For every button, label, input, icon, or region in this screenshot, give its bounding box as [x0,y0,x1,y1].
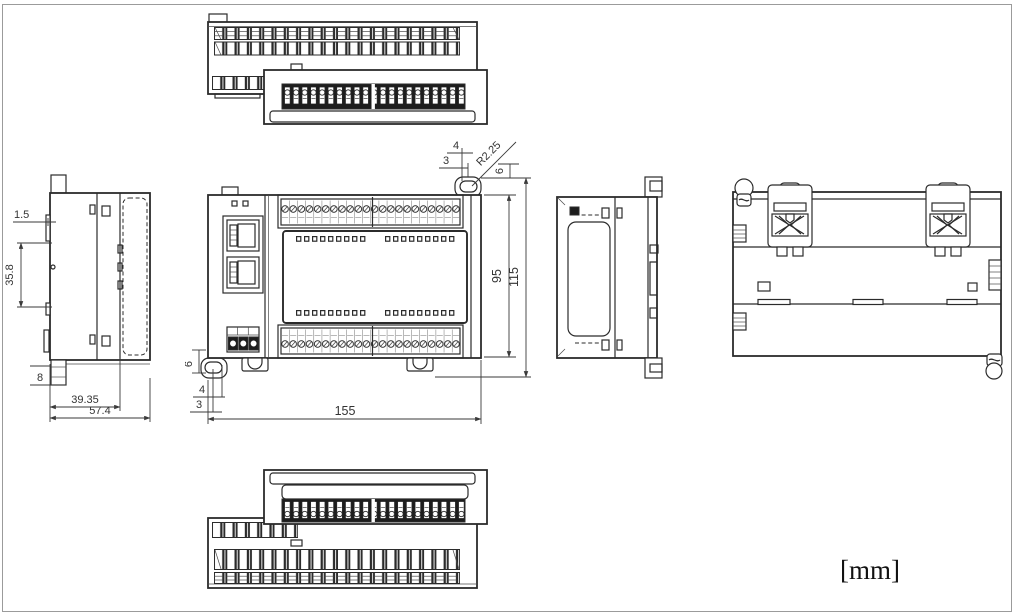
bottom-view-drawing [195,465,505,595]
dim-total-depth: 57.4 [89,405,110,417]
dim-total-height: 115 [507,267,521,287]
dim-total-width: 155 [335,404,356,418]
din-clip-1 [242,358,268,371]
dim-hole-offset-a: 4 [453,140,459,152]
dim-hole-offset-v: 6 [494,168,506,174]
mounting-hole-bottom-right [986,354,1002,379]
din-latch-2 [926,183,970,256]
terminal-divider [372,499,375,522]
top-edge-tab [222,187,238,195]
right-side-view-drawing [550,168,670,388]
bottom-edge-tab [215,94,260,98]
dim-foot-offset-b: 3 [196,399,202,411]
terminal-divider [372,84,375,109]
dim-front-offset: 1.5 [14,209,29,221]
page-root: 1.5 35.8 8 39.35 57.4 [0,0,1014,615]
dim-hole-offset-b: 3 [443,155,449,167]
top-terminal-strip [278,195,463,228]
din-clip-2 [407,358,433,371]
rear-view-drawing [725,168,1010,383]
din-tab-bottom [645,358,662,378]
bottom-terminal-block [264,470,487,524]
dim-foot-offset-a: 4 [199,384,205,396]
bottom-terminal-strip [278,325,463,358]
din-latch-1 [768,183,812,256]
led-row-bottom-left [296,310,368,316]
led-row-bottom-right [385,310,457,316]
mounting-hole-top-left [735,179,753,206]
dim-foot-offset-v: 6 [185,361,195,367]
unit-label: [mm] [840,555,960,586]
led-row-top-left [296,236,368,242]
top-terminal-block [264,70,487,124]
left-case-outline [50,175,150,385]
dim-din-tab: 8 [37,372,43,384]
dim-body-height: 95 [490,269,504,283]
front-view-drawing: 4 3 R2.25 6 95 115 6 [185,128,545,430]
left-side-view-drawing: 1.5 35.8 8 39.35 57.4 [0,168,166,425]
dim-connector-height: 35.8 [4,264,16,285]
din-tab-top [645,177,662,197]
led-row-top-right [385,236,457,242]
din-rail-tab [51,360,66,385]
top-view-drawing [195,8,505,134]
